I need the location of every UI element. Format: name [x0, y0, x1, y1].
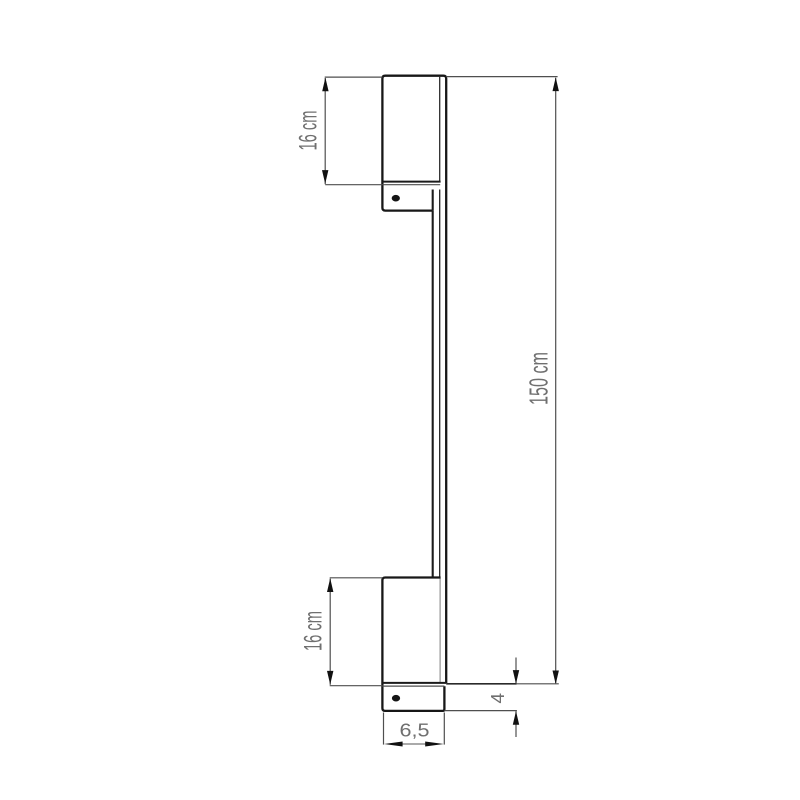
svg-text:4: 4: [488, 693, 508, 704]
svg-text:16 cm: 16 cm: [295, 111, 323, 151]
svg-text:16 cm: 16 cm: [300, 611, 328, 651]
svg-text:6,5: 6,5: [400, 721, 430, 741]
svg-text:150 cm: 150 cm: [524, 352, 554, 405]
